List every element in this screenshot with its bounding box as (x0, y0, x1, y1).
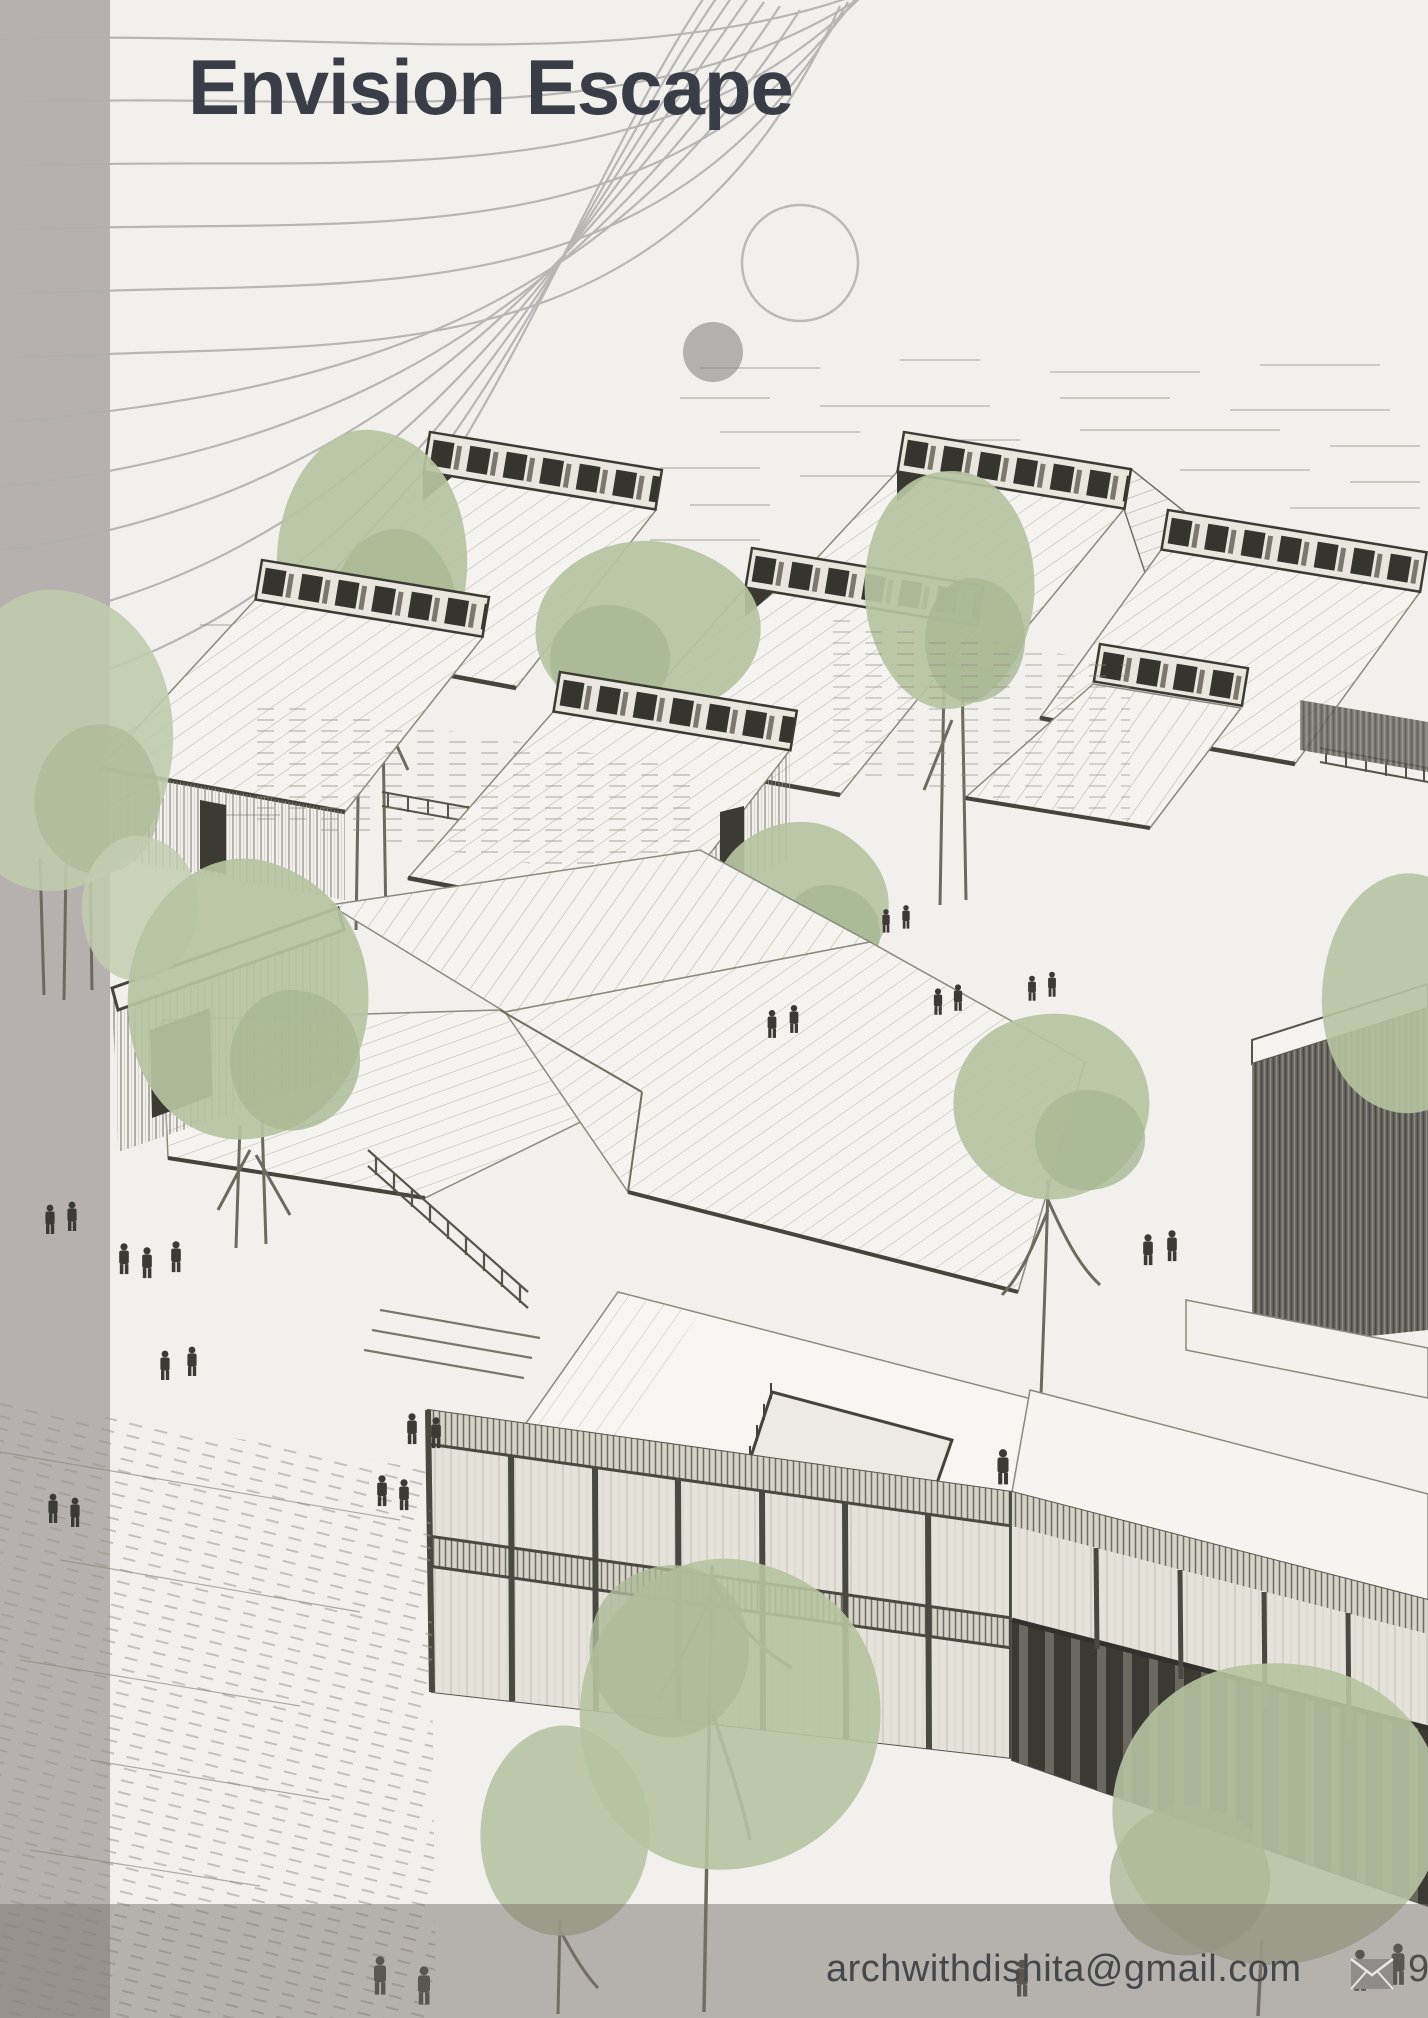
page-title: Envision Escape (188, 42, 948, 133)
portfolio-page: archwithdishita@gmail.com 9 Envision Esc… (0, 0, 1428, 2018)
footer-email: archwithdishita@gmail.com (826, 1948, 1302, 1991)
architectural-sketch (0, 0, 1428, 2018)
footer-phone-partial: 9 (1408, 1948, 1428, 1991)
paving (820, 615, 1130, 820)
envelope-icon (1350, 1958, 1394, 1990)
